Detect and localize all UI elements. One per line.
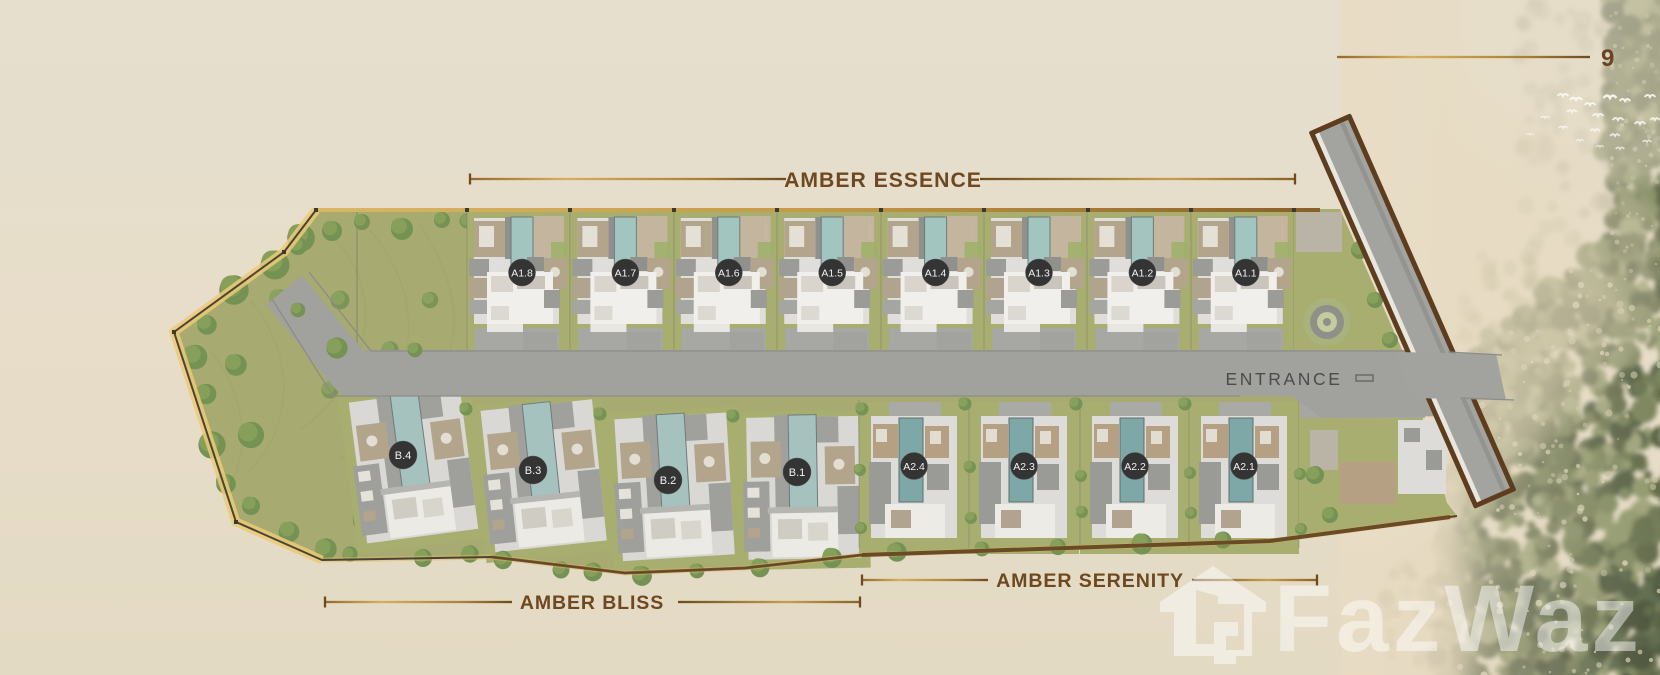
svg-text:A2.2: A2.2 (1124, 461, 1146, 473)
svg-text:A1.2: A1.2 (1132, 267, 1154, 279)
svg-text:B.3: B.3 (525, 465, 542, 477)
svg-text:B.2: B.2 (660, 475, 677, 487)
svg-text:A2.4: A2.4 (903, 461, 925, 473)
svg-text:A1.7: A1.7 (615, 267, 637, 279)
svg-text:ENTRANCE: ENTRANCE (1225, 369, 1342, 389)
svg-text:9: 9 (1601, 45, 1614, 72)
svg-text:A1.4: A1.4 (925, 267, 947, 279)
svg-text:A1.8: A1.8 (511, 267, 533, 279)
svg-text:B.4: B.4 (395, 450, 412, 462)
svg-text:A1.3: A1.3 (1028, 267, 1050, 279)
svg-text:A1.5: A1.5 (821, 267, 843, 279)
svg-text:AMBER SERENITY: AMBER SERENITY (996, 570, 1184, 592)
svg-text:A2.1: A2.1 (1233, 461, 1255, 473)
svg-text:FazWaz: FazWaz (1274, 566, 1643, 672)
svg-text:AMBER BLISS: AMBER BLISS (520, 592, 664, 614)
svg-text:A2.3: A2.3 (1013, 461, 1035, 473)
svg-text:A1.6: A1.6 (718, 267, 740, 279)
svg-text:B.1: B.1 (789, 467, 806, 479)
svg-text:AMBER ESSENCE: AMBER ESSENCE (784, 169, 982, 192)
svg-text:A1.1: A1.1 (1235, 267, 1257, 279)
